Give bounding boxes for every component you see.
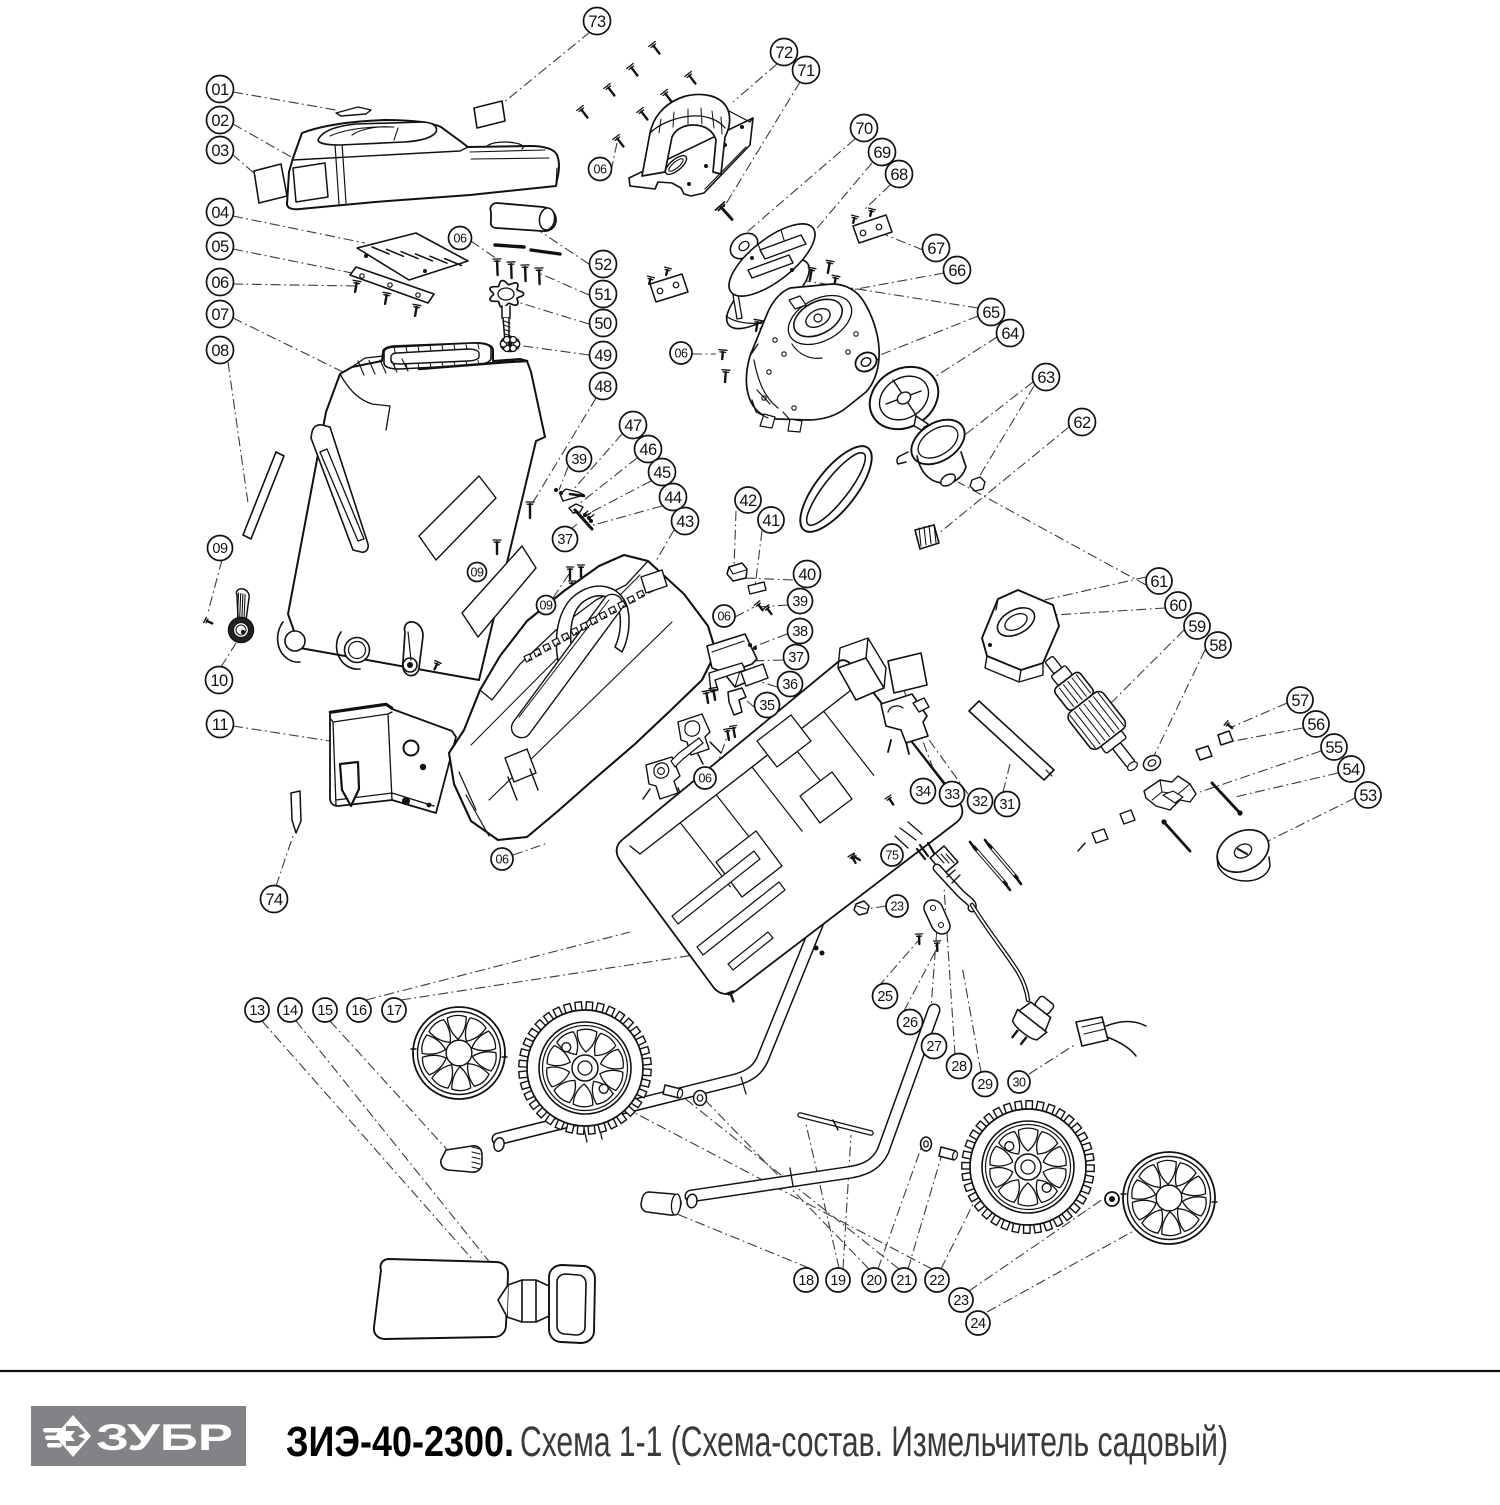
svg-text:40: 40 (798, 566, 816, 584)
svg-text:56: 56 (1307, 716, 1325, 734)
svg-text:55: 55 (1325, 739, 1343, 757)
svg-text:21: 21 (896, 1273, 912, 1289)
svg-text:23: 23 (891, 900, 904, 914)
svg-text:52: 52 (594, 256, 612, 274)
svg-text:06: 06 (496, 853, 509, 867)
svg-text:75: 75 (886, 849, 899, 863)
svg-text:30: 30 (1013, 1076, 1026, 1090)
svg-text:09: 09 (212, 541, 228, 557)
svg-text:09: 09 (471, 566, 484, 580)
svg-text:18: 18 (798, 1273, 814, 1289)
svg-text:65: 65 (982, 304, 1000, 322)
svg-text:19: 19 (830, 1273, 846, 1289)
svg-text:54: 54 (1342, 761, 1360, 779)
svg-text:43: 43 (676, 513, 694, 531)
svg-text:53: 53 (1359, 787, 1377, 805)
svg-text:31: 31 (999, 797, 1015, 813)
svg-text:39: 39 (571, 452, 587, 468)
svg-text:16: 16 (351, 1003, 367, 1019)
svg-text:42: 42 (739, 492, 757, 510)
svg-text:61: 61 (1150, 573, 1168, 591)
svg-text:20: 20 (866, 1273, 882, 1289)
svg-text:71: 71 (797, 62, 815, 80)
svg-text:05: 05 (211, 238, 229, 256)
svg-text:06: 06 (699, 772, 712, 786)
svg-text:34: 34 (915, 784, 931, 800)
svg-text:06: 06 (454, 232, 467, 246)
svg-text:48: 48 (594, 378, 612, 396)
svg-text:58: 58 (1209, 637, 1227, 655)
svg-text:09: 09 (540, 599, 553, 613)
svg-text:50: 50 (594, 315, 612, 333)
svg-text:49: 49 (594, 347, 612, 365)
svg-text:23: 23 (953, 1293, 969, 1309)
svg-text:36: 36 (782, 677, 798, 693)
svg-text:22: 22 (929, 1273, 945, 1289)
svg-text:33: 33 (944, 787, 960, 803)
svg-text:06: 06 (594, 163, 607, 177)
svg-text:51: 51 (594, 286, 612, 304)
svg-text:15: 15 (317, 1003, 333, 1019)
svg-text:59: 59 (1188, 618, 1206, 636)
svg-text:64: 64 (1001, 325, 1019, 343)
svg-text:25: 25 (877, 989, 893, 1005)
svg-text:03: 03 (211, 142, 229, 160)
svg-text:37: 37 (557, 532, 573, 548)
svg-text:72: 72 (775, 44, 793, 62)
svg-text:ЗУБР: ЗУБР (96, 1417, 233, 1458)
svg-text:04: 04 (211, 204, 229, 222)
svg-text:08: 08 (211, 342, 229, 360)
svg-text:06: 06 (675, 347, 688, 361)
svg-text:14: 14 (282, 1003, 298, 1019)
svg-text:38: 38 (792, 624, 808, 640)
svg-text:17: 17 (386, 1003, 402, 1019)
svg-text:07: 07 (211, 306, 229, 324)
svg-text:44: 44 (664, 489, 682, 507)
svg-text:32: 32 (972, 794, 988, 810)
svg-text:41: 41 (762, 512, 780, 530)
svg-text:70: 70 (855, 120, 873, 138)
svg-text:ЗИЭ-40-2300.Схема 1-1 (Схема-с: ЗИЭ-40-2300.Схема 1-1 (Схема-состав. Изм… (286, 1418, 1228, 1466)
svg-text:06: 06 (718, 610, 731, 624)
svg-text:06: 06 (211, 274, 229, 292)
svg-text:37: 37 (788, 650, 804, 666)
svg-text:63: 63 (1037, 369, 1055, 387)
svg-text:39: 39 (792, 594, 808, 610)
svg-text:26: 26 (902, 1015, 918, 1031)
svg-text:35: 35 (759, 698, 775, 714)
svg-text:28: 28 (951, 1059, 967, 1075)
svg-text:74: 74 (265, 891, 283, 909)
svg-text:57: 57 (1291, 692, 1309, 710)
svg-text:66: 66 (948, 262, 966, 280)
svg-text:68: 68 (890, 166, 908, 184)
svg-text:29: 29 (977, 1077, 993, 1093)
svg-text:67: 67 (927, 240, 945, 258)
svg-text:11: 11 (212, 716, 228, 734)
svg-text:45: 45 (653, 464, 671, 482)
svg-text:01: 01 (211, 81, 229, 99)
svg-text:60: 60 (1169, 597, 1187, 615)
svg-text:46: 46 (639, 441, 657, 459)
svg-text:27: 27 (926, 1039, 942, 1055)
svg-text:69: 69 (873, 144, 891, 162)
svg-text:24: 24 (970, 1316, 986, 1332)
svg-text:47: 47 (624, 417, 642, 435)
svg-text:73: 73 (588, 13, 606, 31)
svg-text:62: 62 (1073, 414, 1091, 432)
svg-text:02: 02 (211, 112, 229, 130)
svg-text:13: 13 (249, 1003, 265, 1019)
svg-text:10: 10 (210, 672, 228, 690)
